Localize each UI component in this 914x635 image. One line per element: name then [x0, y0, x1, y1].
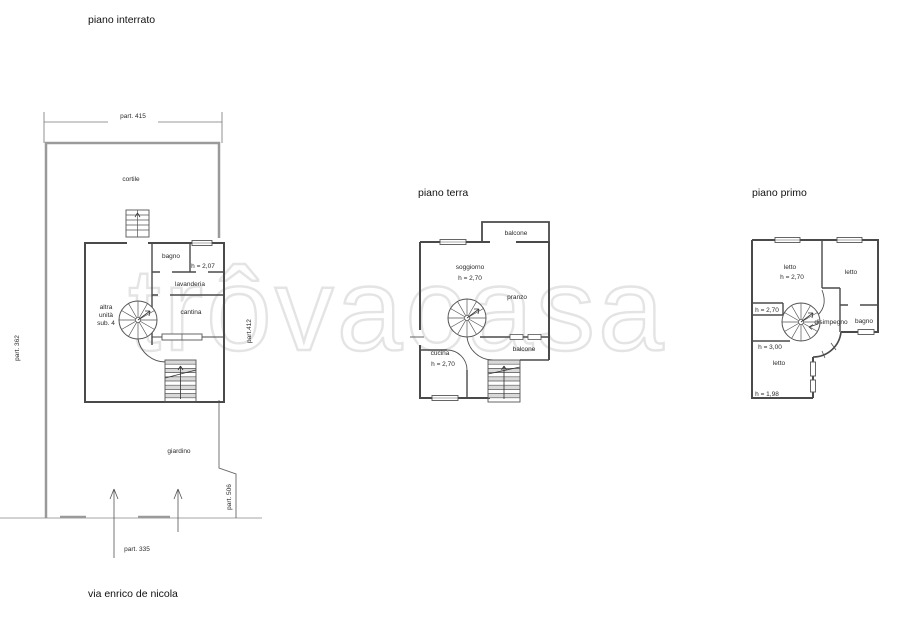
- room-label-lavanderia: lavanderia: [175, 281, 205, 288]
- plan-piano-primo: piano primo letto h = 2,70 letto h = 2,7…: [752, 187, 878, 398]
- cortile-staircase: [126, 210, 149, 237]
- plan-title-primo: piano primo: [752, 187, 807, 199]
- dimension-label: part. 415: [120, 113, 146, 120]
- room-label-cortile: cortile: [122, 176, 140, 183]
- height-label-bagno: h = 2,07: [191, 263, 215, 270]
- height-label-letto-1: h = 2,70: [780, 274, 804, 281]
- height-label-soggiorno: h = 2,70: [458, 275, 482, 282]
- room-label-letto-2: letto: [845, 269, 858, 276]
- height-label-landing: h = 2,70: [755, 307, 779, 314]
- dimension-part-415: part. 415: [44, 112, 222, 143]
- room-label-altra-unita-1: altra: [100, 304, 113, 311]
- room-label-bagno: bagno: [855, 318, 873, 325]
- spiral-staircase: [448, 299, 486, 337]
- street-label: via enrico de nicola: [88, 588, 178, 600]
- dimension-label-part-506: part. 506: [226, 484, 233, 510]
- dimension-label-part-412: part.412: [246, 319, 253, 343]
- room-label-soggiorno: soggiorno: [456, 264, 485, 271]
- height-label-198: h = 1,98: [755, 391, 779, 398]
- room-label-letto-3: letto: [773, 360, 786, 367]
- plan-title-terra: piano terra: [418, 187, 468, 199]
- dimension-label-part-335: part. 335: [124, 546, 150, 553]
- room-label-pranzo: pranzo: [507, 294, 527, 301]
- plan-title-interrato: piano interrato: [88, 14, 155, 26]
- room-label-cucina: cucina: [431, 350, 450, 357]
- room-label-altra-unita-2: unità: [99, 312, 113, 319]
- room-label-letto-1: letto: [784, 264, 797, 271]
- room-label-altra-unita-3: sub. 4: [97, 320, 115, 327]
- room-label-balcone-top: balcone: [505, 230, 528, 237]
- height-label-300: h = 3,00: [758, 344, 782, 351]
- area-label-giardino: giardino: [167, 448, 191, 455]
- floorplan-drawing: trôvacasa piano interrato part. 415: [0, 0, 914, 635]
- spiral-staircase: [119, 301, 157, 339]
- room-label-balcone-right: balcone: [513, 346, 536, 353]
- room-label-cantina: cantina: [181, 309, 202, 316]
- dimension-label-part-362: part. 362: [14, 335, 21, 361]
- room-label-bagno: bagno: [162, 253, 180, 260]
- height-label-cucina: h = 2,70: [431, 361, 455, 368]
- room-label-disimpegno: disimpegno: [814, 319, 848, 326]
- floorplan-page: trôvacasa piano interrato part. 415: [0, 0, 914, 635]
